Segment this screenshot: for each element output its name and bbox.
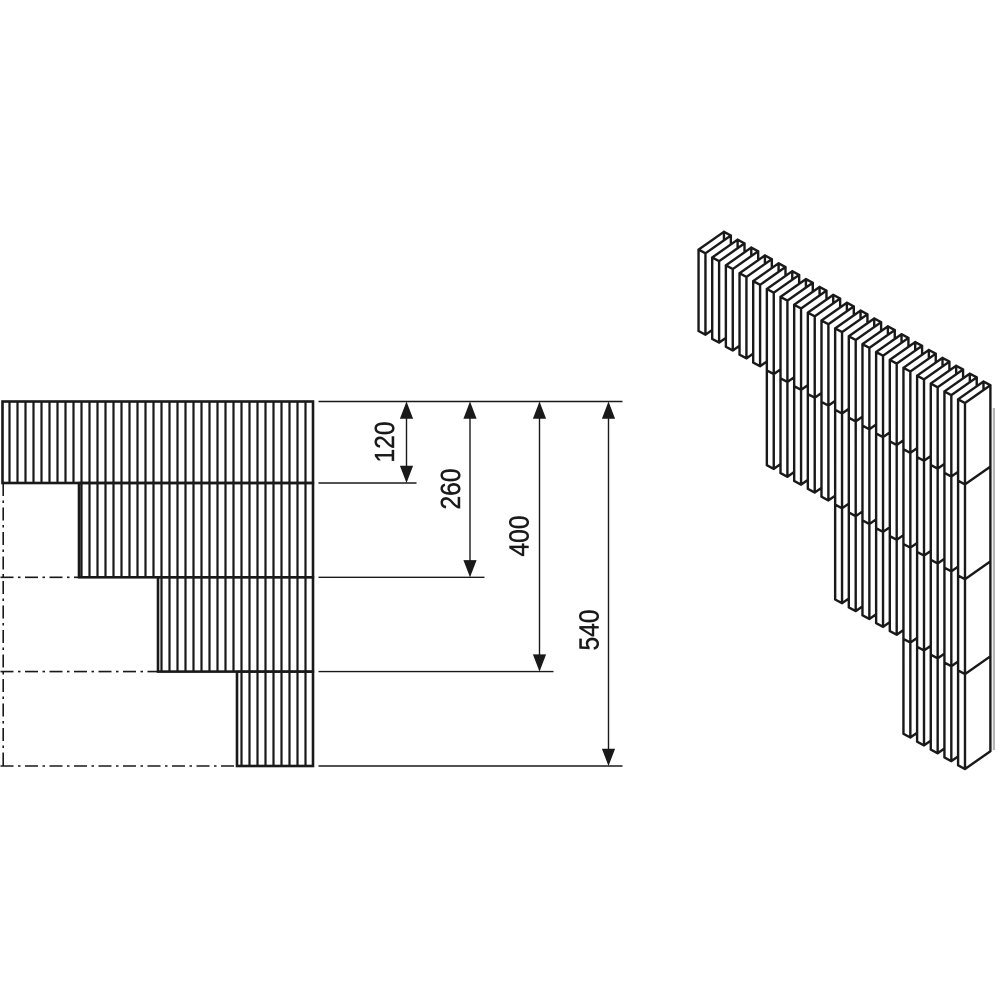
svg-text:400: 400: [503, 516, 534, 557]
svg-text:260: 260: [435, 469, 466, 510]
svg-text:120: 120: [369, 422, 400, 463]
svg-text:540: 540: [574, 610, 605, 651]
